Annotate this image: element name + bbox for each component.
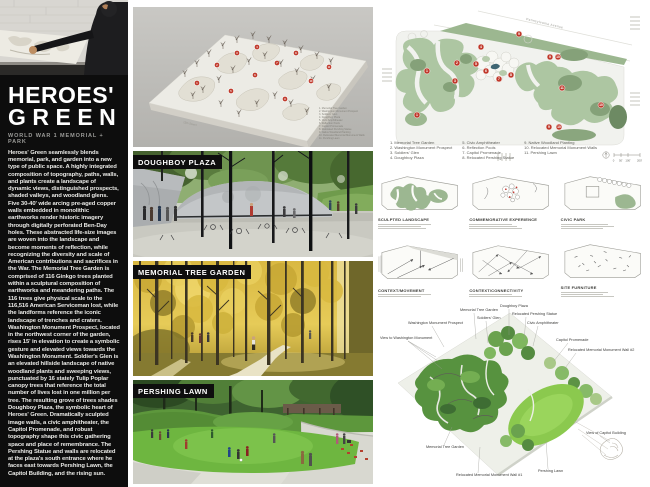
callout-label: Relocated Memorial Monument Wall #2 bbox=[568, 348, 634, 352]
doughboy-plaza-render: DOUGHBOY PLAZA bbox=[133, 151, 373, 257]
diagram-title: SCULPTED LANDSCAPE bbox=[378, 217, 463, 222]
callout-label: Relocated Memorial Monument Wall #1 bbox=[456, 473, 522, 477]
model-photo: 1234567891011 1. Memorial Tree Garden2. … bbox=[133, 7, 373, 147]
plan-marker-number: 5 bbox=[475, 62, 477, 66]
diagram-title: COMMEMORATIVE EXPERIENCE bbox=[469, 217, 554, 222]
title-panel: HEROES' GREEN WORLD WAR 1 MEMORIAL + PAR… bbox=[0, 75, 128, 487]
diagram-context-connectivity: CONTEXT/CONNECTIVITY bbox=[469, 235, 554, 297]
callout-label: View to Washington Monument bbox=[380, 336, 433, 340]
diagram-title: SITE FURNITURE bbox=[561, 285, 646, 290]
plan-marker-number: 10 bbox=[557, 125, 561, 129]
diagram-title: CONTEXT/MOVEMENT bbox=[378, 288, 463, 293]
legend-item: 11.Pershing Lawn bbox=[524, 150, 598, 155]
callout-label: View of Capitol Building bbox=[586, 431, 626, 435]
project-description: Heroes' Green seamlessly blends memorial… bbox=[8, 150, 120, 478]
plan-marker-number: 11 bbox=[560, 86, 564, 90]
callout-label: Capitol Promenade bbox=[556, 338, 589, 342]
scale-label: 200' bbox=[637, 159, 643, 163]
plan-marker-number: 10 bbox=[556, 55, 560, 59]
diagram-sculpted-landscape: SCULPTED LANDSCAPE bbox=[378, 167, 463, 229]
diagram-site-furniture: SITE FURNITURE bbox=[561, 235, 646, 297]
pershing-lawn-render: PERSHING LAWN bbox=[133, 380, 373, 484]
diagram-sculpted-landscape-art bbox=[378, 167, 463, 215]
diagram-civic-park-art bbox=[561, 167, 646, 215]
plan-marker-number: 9 bbox=[518, 32, 520, 36]
diagram-commemorative-experience: COMMEMORATIVE EXPERIENCE bbox=[469, 167, 554, 229]
diagram-site-furniture-art bbox=[561, 235, 646, 283]
diagram-title: CONTEXT/CONNECTIVITY bbox=[469, 288, 554, 293]
project-title: HEROES' GREEN bbox=[8, 85, 120, 129]
memorial-tree-garden-label: MEMORIAL TREE GARDEN bbox=[133, 265, 251, 279]
doughboy-plaza-label: DOUGHBOY PLAZA bbox=[133, 155, 222, 169]
callout-label: Soldiers' Glen bbox=[477, 316, 501, 320]
aerial-perspective: View to Washington MonumentWashington Mo… bbox=[378, 299, 646, 485]
plan-marker-number: 9 bbox=[549, 55, 551, 59]
plan-marker-number: 1 bbox=[416, 113, 418, 117]
model-legend-line: 11. Pershing Lawn bbox=[319, 137, 340, 140]
model-photo-image: 1234567891011 1. Memorial Tree Garden2. … bbox=[133, 7, 373, 147]
aerial-perspective-drawing: View to Washington MonumentWashington Mo… bbox=[378, 299, 646, 485]
plan-marker-number: 6 bbox=[485, 69, 487, 73]
callout-label: Memorial Tree Garden bbox=[460, 308, 498, 312]
scale-label: 100' bbox=[625, 159, 631, 163]
diagram-commemorative-experience-art bbox=[469, 167, 554, 215]
callout-label: Pershing Lawn bbox=[538, 469, 563, 473]
model-hands-photo bbox=[0, 0, 128, 75]
plan-marker-number: 7 bbox=[498, 77, 500, 81]
diagram-context-connectivity-art bbox=[469, 235, 554, 286]
project-board: HEROES' GREEN WORLD WAR 1 MEMORIAL + PAR… bbox=[0, 0, 650, 487]
legend-item: 8.Relocated Pershing Statue bbox=[462, 155, 515, 160]
memorial-tree-garden-render: MEMORIAL TREE GARDEN bbox=[133, 261, 373, 376]
analysis-diagrams: SCULPTED LANDSCAPE COMMEMORATIVE EXPERIE… bbox=[378, 167, 646, 297]
callout-label: Relocated Pershing Statue bbox=[512, 312, 557, 316]
pershing-lawn-label: PERSHING LAWN bbox=[133, 384, 214, 398]
diagram-context-movement-art bbox=[378, 235, 463, 286]
project-title-line2: GREEN bbox=[8, 107, 120, 129]
plan-marker-number: 8 bbox=[510, 73, 512, 77]
plan-marker-number: 2 bbox=[456, 61, 458, 65]
scale-label: 50' bbox=[619, 159, 623, 163]
plan-marker-number: 4 bbox=[480, 45, 482, 49]
plan-marker-number: 9 bbox=[548, 125, 550, 129]
callout-label: Doughboy Plaza bbox=[500, 304, 529, 308]
plan-marker-number: 1 bbox=[426, 69, 428, 73]
diagram-title: CIVIC PARK bbox=[561, 217, 646, 222]
callout-label: Washington Monument Prospect bbox=[408, 321, 464, 325]
model-hands-photo-image bbox=[0, 0, 128, 75]
callout-label: Civic Amphitheater bbox=[527, 321, 559, 325]
site-plan-legend: 1.Memorial Tree Garden 2.Washington Monu… bbox=[390, 140, 598, 160]
legend-item: 4.Doughboy Plaza bbox=[390, 155, 453, 160]
site-plan: Pennsylvania Avenue 12314567899101191010… bbox=[378, 7, 646, 163]
plan-marker-number: 10 bbox=[599, 103, 603, 107]
callout-label: Memorial Tree Garden bbox=[426, 445, 464, 449]
diagram-civic-park: CIVIC PARK bbox=[561, 167, 646, 229]
diagram-context-movement: CONTEXT/MOVEMENT bbox=[378, 235, 463, 297]
plan-marker-number: 3 bbox=[454, 79, 456, 83]
project-subtitle: WORLD WAR 1 MEMORIAL + PARK bbox=[8, 133, 120, 145]
